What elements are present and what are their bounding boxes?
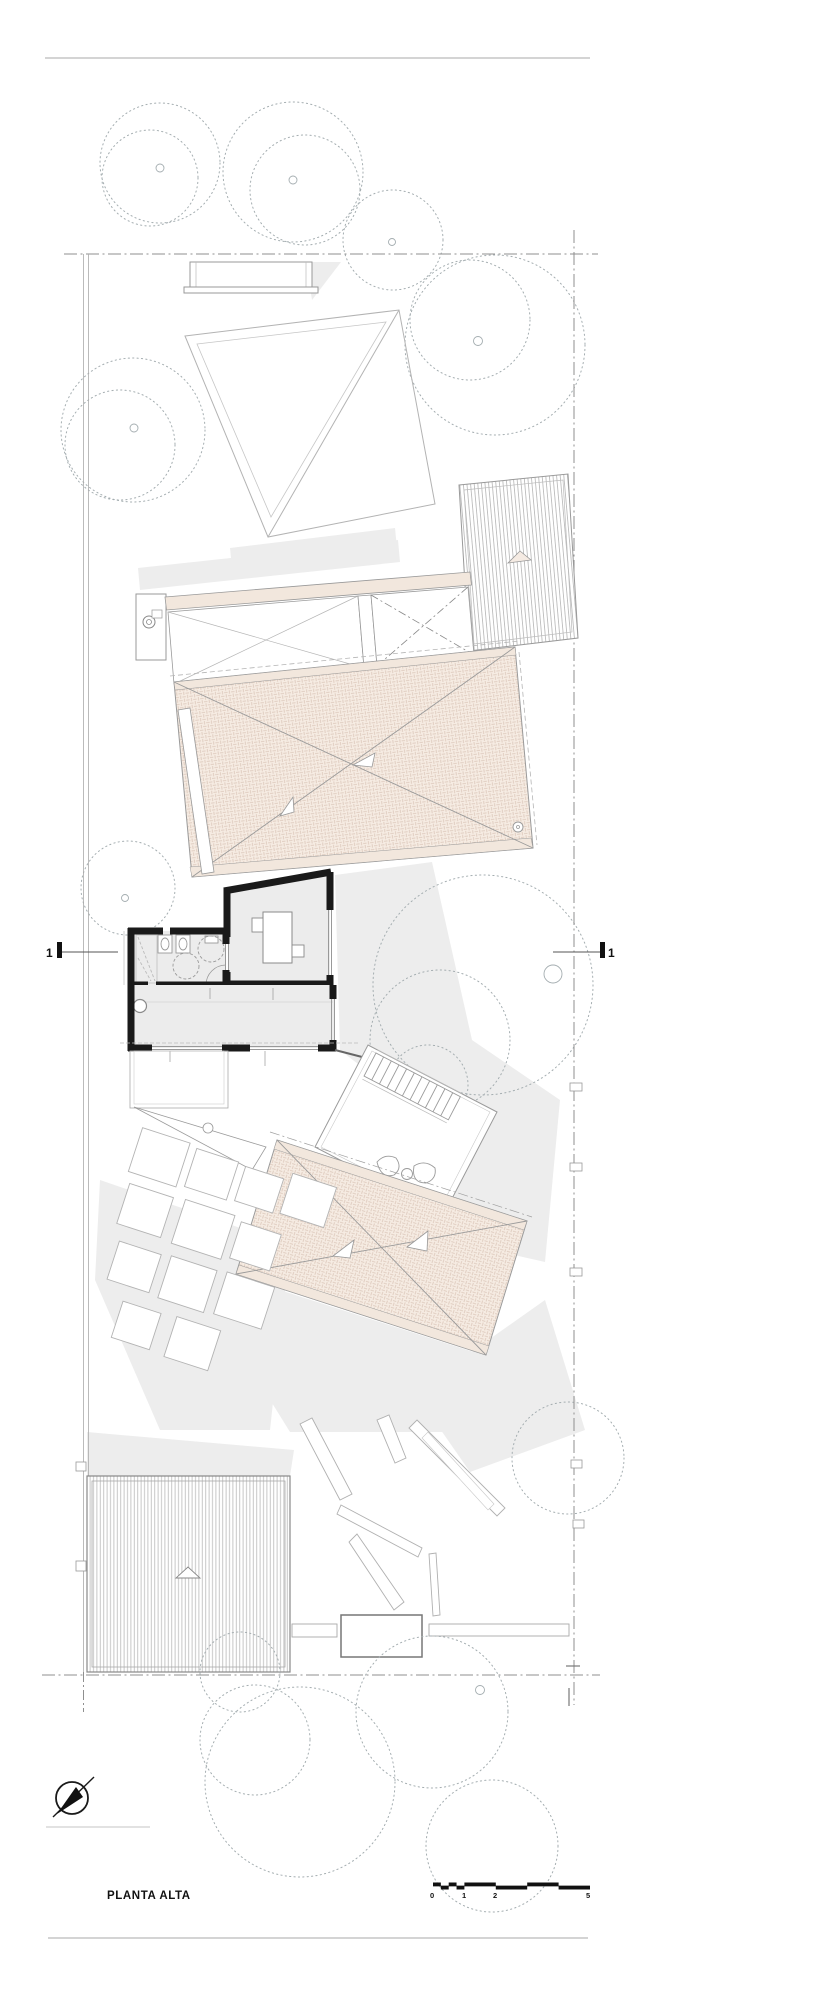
tree-trunk [389, 239, 396, 246]
column [134, 1000, 147, 1013]
scale-label-2: 2 [493, 1891, 497, 1900]
walk-bar [429, 1624, 569, 1636]
chair [252, 918, 263, 932]
canopy-triangle [185, 310, 435, 537]
scale-bar: 0 1 2 5 [430, 1883, 590, 1901]
north-arrow-icon [53, 1777, 94, 1817]
tree [405, 255, 585, 435]
desk [263, 912, 292, 963]
tree-trunk [474, 337, 483, 346]
walk-bar [292, 1624, 337, 1637]
bedroom-room [120, 985, 366, 1066]
bathroom [124, 928, 229, 988]
section-marker-left: 1 [46, 942, 118, 960]
tree-trunk [289, 176, 297, 184]
tree [200, 1685, 310, 1795]
tree [61, 358, 205, 502]
drawing-sheet: 1 1 PLANTA ALTA 0 1 2 5 [0, 0, 822, 2000]
tree-trunk [122, 895, 129, 902]
tree [356, 1636, 508, 1788]
floor-plan-canvas: 1 1 PLANTA ALTA 0 1 2 5 [0, 0, 822, 2000]
plan-title: PLANTA ALTA [107, 1890, 191, 1902]
tree [343, 190, 443, 290]
tree-trunk [156, 164, 164, 172]
section-marker-right: 1 [553, 942, 615, 960]
tree [102, 130, 198, 226]
shed [341, 1615, 422, 1657]
tree-trunk [544, 965, 562, 983]
tree [223, 102, 363, 242]
tree [410, 260, 530, 380]
section-label-left: 1 [46, 946, 53, 960]
tree [65, 390, 175, 500]
tree [100, 103, 220, 223]
main-roof-upper [170, 641, 537, 877]
tree [426, 1780, 558, 1912]
tree [250, 135, 360, 245]
side-table [292, 945, 304, 957]
section-label-right: 1 [608, 946, 615, 960]
office-room [224, 872, 336, 991]
scale-label-5: 5 [586, 1891, 590, 1900]
boundary-ticks [570, 1083, 584, 1528]
striped-roof-upper [459, 474, 578, 651]
scale-label-0: 0 [430, 1891, 434, 1900]
tree-trunk [476, 1686, 485, 1695]
entry-canopy [184, 262, 318, 293]
tree [81, 841, 175, 935]
tree [205, 1687, 395, 1877]
tree-trunk [130, 424, 138, 432]
scale-label-1: 1 [462, 1891, 466, 1900]
trees-front [200, 1632, 558, 1912]
garage-roof [76, 1462, 290, 1672]
